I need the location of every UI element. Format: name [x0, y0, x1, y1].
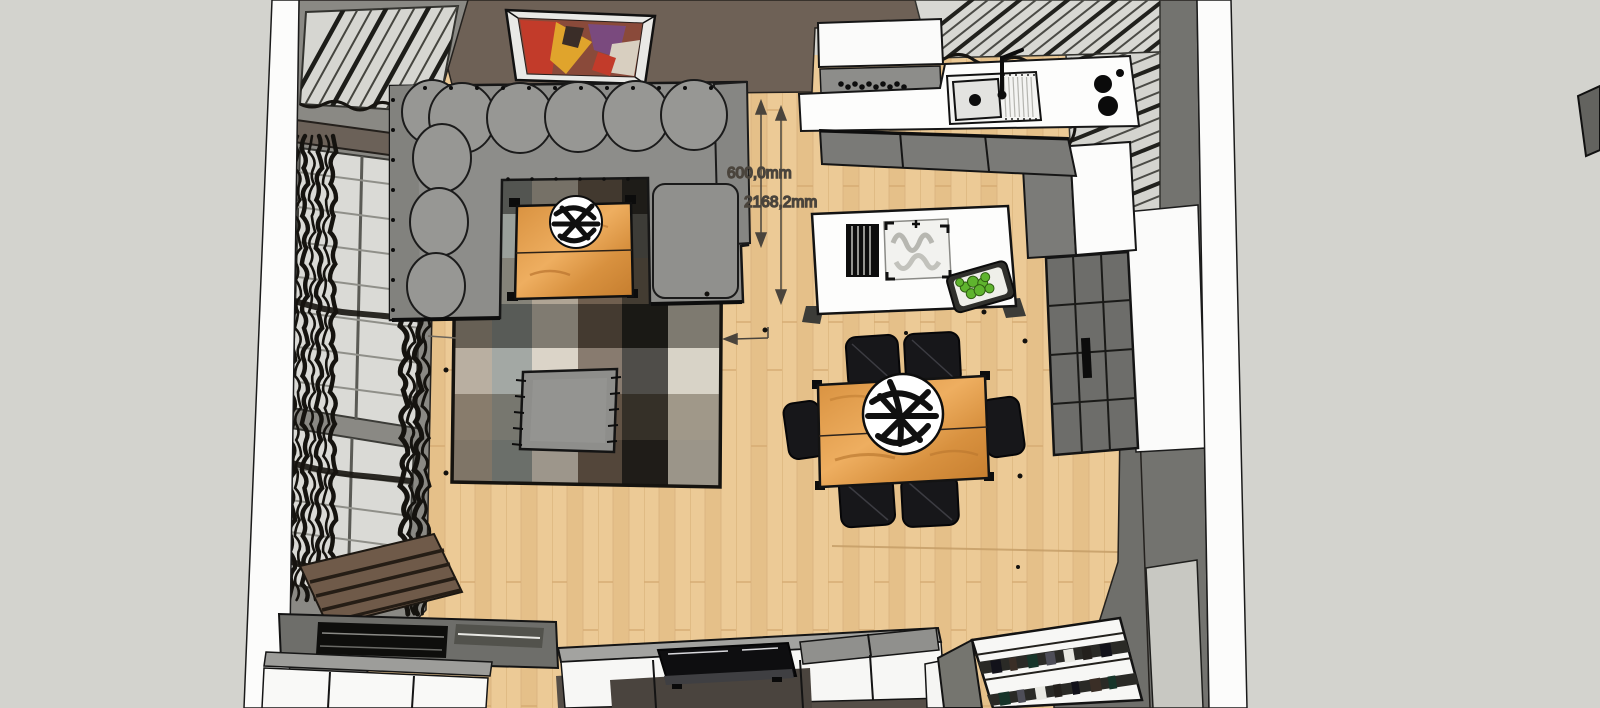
counter-jar[interactable] — [1116, 69, 1124, 77]
decor-bowl[interactable] — [863, 374, 943, 454]
floorplan-scene: 600,0mm 2168,2mm — [0, 0, 1600, 708]
coffee-table[interactable] — [507, 195, 638, 301]
floorplan-canvas: 600,0mm 2168,2mm — [0, 0, 1600, 708]
dimension-label-small[interactable]: 600,0mm — [727, 165, 792, 182]
counter-jar[interactable] — [1094, 75, 1112, 93]
bottom-left-cabinets[interactable] — [262, 652, 492, 708]
dimension-label-large[interactable]: 2168,2mm — [744, 194, 817, 211]
wall-art[interactable] — [506, 10, 655, 84]
door-inset[interactable] — [1146, 560, 1203, 708]
upper-cabinet[interactable] — [818, 19, 943, 67]
kitchen-island[interactable] — [802, 206, 1026, 324]
right-wall-white-panel — [1126, 205, 1206, 452]
dish-rack[interactable] — [846, 224, 879, 277]
ottoman[interactable] — [512, 369, 621, 452]
cooktop[interactable] — [884, 219, 951, 280]
dining-table[interactable] — [812, 371, 994, 490]
decor-bowl[interactable] — [550, 196, 602, 248]
grid-cabinet[interactable] — [1046, 252, 1138, 455]
counter-jar[interactable] — [1098, 96, 1118, 116]
